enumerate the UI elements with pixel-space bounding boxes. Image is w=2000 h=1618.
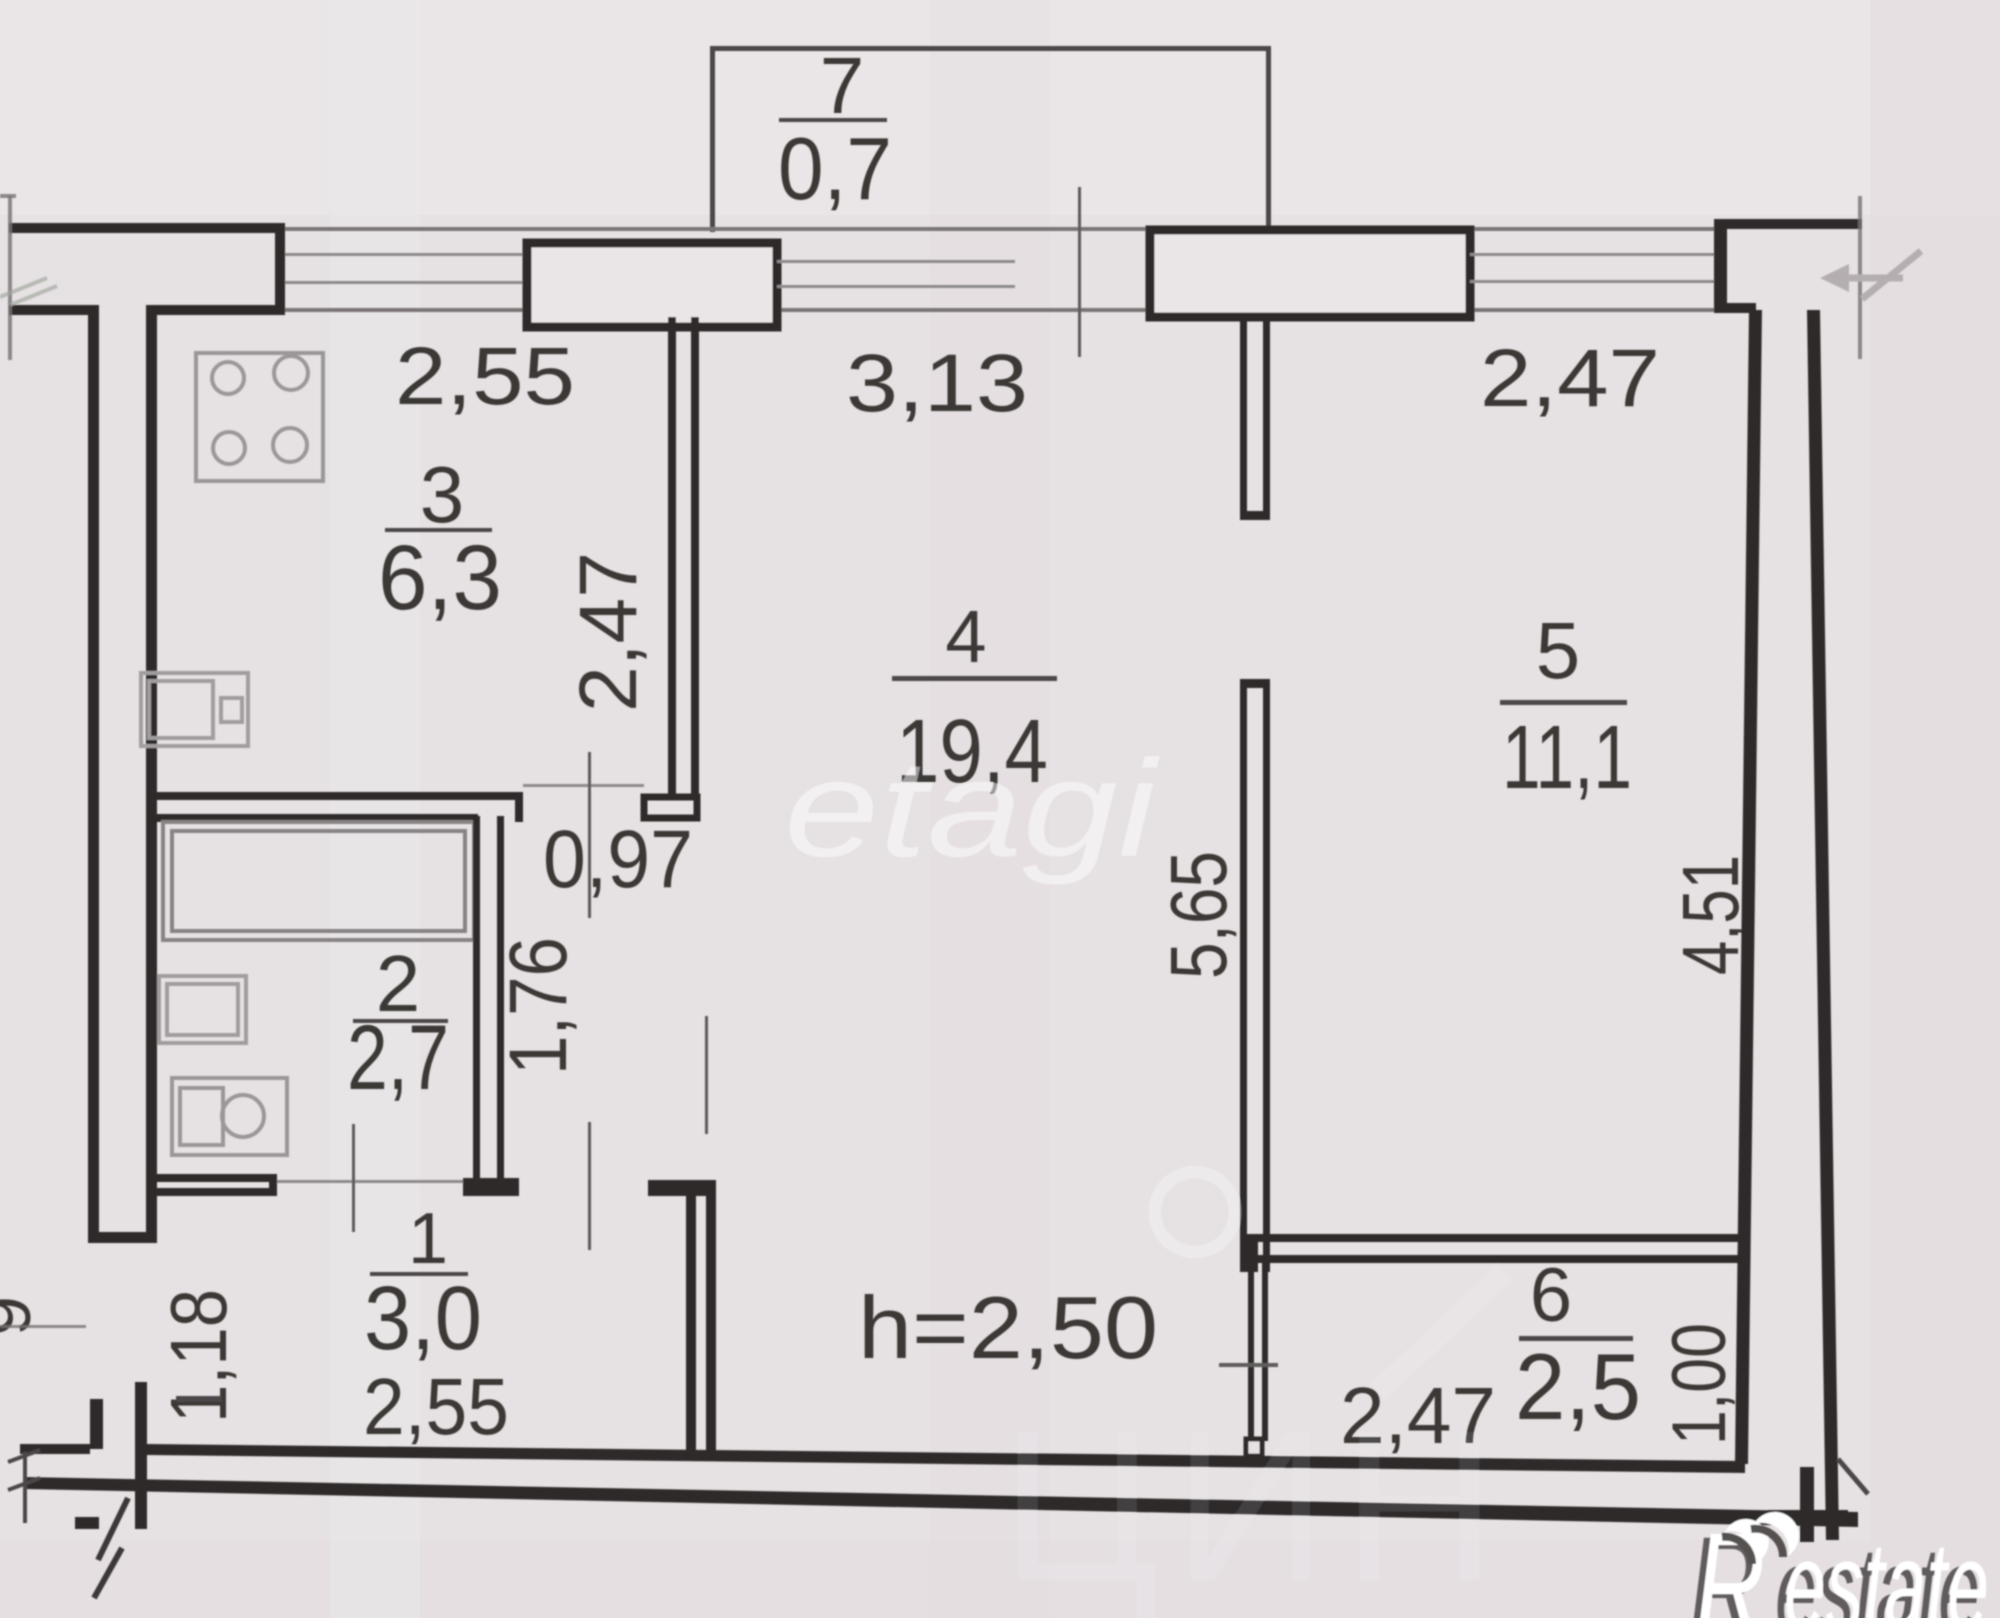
- svg-text:2,55: 2,55: [363, 1362, 509, 1451]
- svg-text:9: 9: [0, 1296, 46, 1336]
- svg-text:etagi: etagi: [784, 732, 1160, 886]
- svg-text:ЦИН: ЦИН: [1000, 1385, 1511, 1618]
- svg-text:0,7: 0,7: [778, 119, 892, 218]
- svg-text:3,13: 3,13: [846, 338, 1028, 429]
- svg-text:11,1: 11,1: [1502, 708, 1632, 808]
- svg-text:6,3: 6,3: [378, 527, 502, 629]
- svg-text:2,7: 2,7: [347, 1007, 449, 1109]
- svg-text:1,00: 1,00: [1657, 1323, 1742, 1445]
- svg-text:2,47: 2,47: [563, 552, 654, 712]
- svg-text:1,18: 1,18: [154, 1289, 243, 1423]
- svg-text:7: 7: [820, 41, 865, 130]
- svg-text:5,65: 5,65: [1154, 851, 1243, 979]
- svg-text:0,97: 0,97: [543, 814, 693, 905]
- svg-text:3: 3: [420, 450, 465, 539]
- svg-text:estate: estate: [1784, 1517, 1989, 1618]
- svg-text:3,0: 3,0: [364, 1269, 482, 1369]
- svg-text:5: 5: [1536, 606, 1581, 695]
- svg-text:2,47: 2,47: [1480, 333, 1660, 424]
- svg-text:h=2,50: h=2,50: [858, 1278, 1158, 1377]
- svg-text:6: 6: [1530, 1253, 1572, 1338]
- svg-text:1: 1: [408, 1199, 448, 1279]
- svg-text:4: 4: [945, 595, 986, 678]
- svg-text:1,76: 1,76: [493, 937, 584, 1075]
- svg-text:2,5: 2,5: [1515, 1334, 1641, 1439]
- svg-text:2,55: 2,55: [395, 331, 575, 422]
